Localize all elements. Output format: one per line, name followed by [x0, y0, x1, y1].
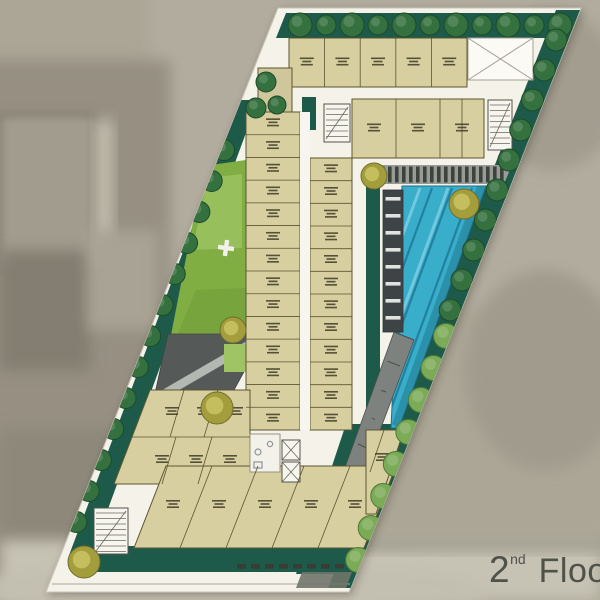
walkway-slat — [416, 167, 420, 183]
label-line — [305, 506, 317, 508]
tree — [361, 163, 387, 189]
tree-highlight — [425, 359, 436, 370]
label-line — [224, 461, 236, 463]
label-line — [327, 236, 336, 238]
label-line — [304, 500, 318, 502]
label-line — [325, 375, 337, 377]
walkway-slat — [451, 167, 455, 183]
label-line — [267, 375, 279, 377]
label-line — [269, 326, 278, 328]
label-line — [324, 300, 338, 302]
floor-plan-image — [0, 0, 600, 600]
label-line — [166, 413, 178, 415]
tree-highlight — [365, 167, 379, 181]
label-line — [414, 127, 423, 129]
tree — [533, 59, 555, 81]
fence-dash — [265, 564, 274, 569]
tree — [268, 96, 286, 114]
label-line — [269, 212, 278, 214]
tree — [340, 13, 364, 37]
label-line — [269, 167, 278, 169]
tree — [68, 546, 100, 578]
label-line — [327, 281, 336, 283]
label-line — [165, 407, 179, 409]
tree-highlight — [552, 16, 563, 27]
tree-highlight — [478, 212, 488, 222]
tree — [524, 15, 544, 35]
tree — [420, 15, 440, 35]
tree-highlight — [259, 75, 268, 84]
label-line — [325, 284, 337, 286]
lounge-chair — [386, 214, 401, 218]
stair-core — [94, 508, 128, 554]
label-line — [408, 64, 420, 66]
tree-highlight — [362, 519, 373, 530]
fence-dash — [293, 564, 302, 569]
label-line — [324, 187, 338, 189]
entry-drive — [296, 572, 352, 588]
tree-highlight — [292, 16, 303, 27]
label-line — [327, 417, 336, 419]
central-corridor — [300, 112, 310, 430]
label-line — [213, 506, 225, 508]
label-line — [267, 193, 279, 195]
label-line — [325, 352, 337, 354]
tree — [288, 13, 312, 37]
tree — [498, 149, 520, 171]
tree-highlight — [400, 423, 411, 434]
tree-highlight — [442, 302, 452, 312]
label-line — [189, 455, 203, 457]
label-line — [324, 368, 338, 370]
label-line — [266, 209, 280, 211]
tree — [368, 15, 388, 35]
background-door-frame — [0, 115, 95, 270]
elevator-core — [282, 440, 300, 460]
tree — [246, 98, 266, 118]
walkway-slat — [409, 167, 413, 183]
floor-plan-screenshot: 2ndFloor — [0, 0, 600, 600]
label-line — [325, 329, 337, 331]
tree — [256, 72, 276, 92]
tree — [451, 269, 473, 291]
label-line — [335, 58, 349, 60]
tree-highlight — [271, 98, 279, 106]
tree — [439, 299, 461, 321]
tree — [545, 29, 567, 51]
walkway-slat — [479, 167, 483, 183]
tree — [521, 89, 543, 111]
pool-deck — [383, 190, 403, 332]
label-line — [168, 410, 177, 412]
label-line — [327, 394, 336, 396]
label-line — [267, 125, 279, 127]
tree — [220, 317, 246, 343]
label-line — [269, 417, 278, 419]
label-line — [324, 391, 338, 393]
label-line — [327, 326, 336, 328]
label-line — [371, 58, 385, 60]
tree — [496, 13, 520, 37]
label-line — [169, 503, 178, 505]
walkway-slat — [465, 167, 469, 183]
tree-highlight — [344, 16, 355, 27]
label-line — [348, 500, 362, 502]
pool-deck-strip — [383, 190, 403, 332]
fence-dash — [307, 564, 316, 569]
label-line — [267, 397, 279, 399]
label-line — [266, 323, 280, 325]
lounge-chair — [386, 231, 401, 235]
label-line — [215, 503, 224, 505]
tree — [463, 239, 485, 261]
label-line — [226, 458, 235, 460]
label-line — [259, 506, 271, 508]
tree-highlight — [454, 272, 464, 282]
label-line — [261, 503, 270, 505]
walkway-slat — [458, 167, 462, 183]
label-line — [267, 261, 279, 263]
tree — [201, 392, 233, 424]
label-line — [301, 64, 313, 66]
label-line — [267, 352, 279, 354]
label-line — [267, 306, 279, 308]
label-line — [324, 278, 338, 280]
label-line — [266, 277, 280, 279]
label-line — [336, 64, 348, 66]
tree-highlight — [437, 327, 448, 338]
label-line — [327, 304, 336, 306]
tree — [392, 13, 416, 37]
label-line — [223, 455, 237, 457]
label-line — [327, 190, 336, 192]
label-line — [324, 414, 338, 416]
label-line — [374, 61, 383, 63]
walkway-slat — [430, 167, 434, 183]
fence-dash — [321, 564, 330, 569]
label-line — [307, 503, 316, 505]
label-line — [266, 391, 280, 393]
label-line — [324, 210, 338, 212]
label-line — [269, 144, 278, 146]
tree-highlight — [349, 551, 360, 562]
label-line — [266, 255, 280, 257]
label-line — [269, 394, 278, 396]
tree-highlight — [466, 242, 476, 252]
label-line — [442, 58, 456, 60]
label-line — [411, 124, 425, 126]
tree-highlight — [396, 16, 407, 27]
tree-highlight — [548, 32, 558, 42]
label-line — [324, 323, 338, 325]
label-line — [443, 64, 455, 66]
background-furniture — [88, 230, 158, 330]
label-line — [324, 255, 338, 257]
tree — [486, 179, 508, 201]
lounge-chair — [386, 265, 401, 269]
label-line — [445, 61, 454, 63]
label-line — [367, 124, 381, 126]
fence-dash — [335, 564, 344, 569]
tree-highlight — [475, 18, 484, 27]
label-line — [267, 284, 279, 286]
lounge-chair — [386, 299, 401, 303]
label-line — [266, 414, 280, 416]
label-line — [325, 193, 337, 195]
label-line — [212, 500, 226, 502]
label-line — [375, 453, 389, 455]
label-line — [269, 190, 278, 192]
tree — [472, 15, 492, 35]
label-line — [325, 420, 337, 422]
label-line — [409, 61, 418, 63]
background-furniture — [0, 250, 90, 370]
tree-highlight — [537, 62, 547, 72]
tree-highlight — [206, 397, 224, 415]
tree-highlight — [423, 18, 432, 27]
label-line — [269, 235, 278, 237]
label-line — [166, 500, 180, 502]
label-line — [267, 329, 279, 331]
label-line — [349, 506, 361, 508]
walkway-slat — [402, 167, 406, 183]
label-line — [269, 281, 278, 283]
fence-dash — [237, 564, 246, 569]
label-line — [300, 58, 314, 60]
label-line — [325, 261, 337, 263]
tree — [316, 15, 336, 35]
label-line — [327, 349, 336, 351]
label-line — [325, 216, 337, 218]
tree-highlight — [527, 18, 536, 27]
label-line — [456, 130, 468, 132]
tree — [444, 13, 468, 37]
walkway-slat — [437, 167, 441, 183]
label-line — [302, 61, 311, 63]
label-line — [267, 170, 279, 172]
label-line — [266, 187, 280, 189]
label-line — [266, 164, 280, 166]
tree-highlight — [412, 391, 423, 402]
tree-highlight — [501, 152, 511, 162]
floor-label: 2ndFloor — [489, 551, 600, 590]
label-line — [192, 458, 201, 460]
lounge-chair — [386, 282, 401, 286]
walkway-slat — [444, 167, 448, 183]
walkway-slat — [423, 167, 427, 183]
label-line — [325, 239, 337, 241]
fence-dash — [251, 564, 260, 569]
floor-word: Floor — [539, 552, 600, 590]
stair-core — [324, 104, 350, 142]
label-line — [267, 147, 279, 149]
label-line — [267, 420, 279, 422]
label-line — [266, 300, 280, 302]
tree — [449, 189, 479, 219]
label-line — [327, 258, 336, 260]
label-line — [372, 64, 384, 66]
floor-ordinal: nd — [510, 551, 526, 567]
elevator-core — [282, 462, 300, 482]
void-roof-area — [468, 38, 533, 80]
label-line — [269, 371, 278, 373]
tree-highlight — [371, 18, 380, 27]
label-line — [324, 164, 338, 166]
label-line — [158, 458, 167, 460]
label-line — [156, 461, 168, 463]
background-floor-edge — [350, 536, 600, 552]
label-line — [267, 238, 279, 240]
label-line — [167, 506, 179, 508]
tree-highlight — [387, 455, 398, 466]
label-line — [266, 232, 280, 234]
tree-highlight — [490, 182, 500, 192]
label-line — [267, 216, 279, 218]
tree-highlight — [500, 16, 511, 27]
label-line — [266, 141, 280, 143]
tree — [474, 209, 496, 231]
tree-highlight — [513, 122, 523, 132]
label-line — [327, 168, 336, 170]
tree-highlight — [73, 551, 91, 569]
label-line — [258, 500, 272, 502]
tree-highlight — [224, 321, 238, 335]
label-line — [407, 58, 421, 60]
stair-core — [488, 100, 512, 150]
building-row-top — [289, 38, 467, 87]
label-line — [266, 346, 280, 348]
label-line — [325, 397, 337, 399]
label-line — [324, 232, 338, 234]
label-line — [368, 130, 380, 132]
label-line — [266, 368, 280, 370]
tree-highlight — [319, 18, 328, 27]
lawn-patch — [224, 344, 246, 372]
tree-highlight — [525, 92, 535, 102]
label-line — [327, 372, 336, 374]
label-line — [351, 503, 360, 505]
lounge-chair — [386, 248, 401, 252]
service-pods — [250, 434, 280, 472]
tree-highlight — [375, 487, 386, 498]
tree-highlight — [448, 16, 459, 27]
building-row-second — [352, 99, 484, 158]
label-line — [266, 118, 280, 120]
walkway-slat — [395, 167, 399, 183]
walkway-slat — [388, 167, 392, 183]
label-line — [370, 127, 379, 129]
label-line — [458, 127, 467, 129]
walkway-slat — [486, 167, 490, 183]
floor-number: 2 — [489, 549, 510, 590]
label-line — [327, 213, 336, 215]
label-line — [269, 122, 278, 124]
tree-highlight — [454, 194, 471, 211]
label-line — [269, 349, 278, 351]
label-line — [455, 124, 469, 126]
label-line — [269, 303, 278, 305]
label-line — [338, 61, 347, 63]
label-line — [324, 346, 338, 348]
label-line — [155, 455, 169, 457]
tree — [510, 119, 532, 141]
lounge-chair — [386, 316, 401, 320]
walkway-slat — [472, 167, 476, 183]
lounge-chair — [386, 197, 401, 201]
label-line — [325, 307, 337, 309]
tree-highlight — [249, 101, 258, 110]
label-line — [190, 461, 202, 463]
label-line — [412, 130, 424, 132]
fence-dash — [279, 564, 288, 569]
label-line — [269, 258, 278, 260]
label-line — [325, 171, 337, 173]
